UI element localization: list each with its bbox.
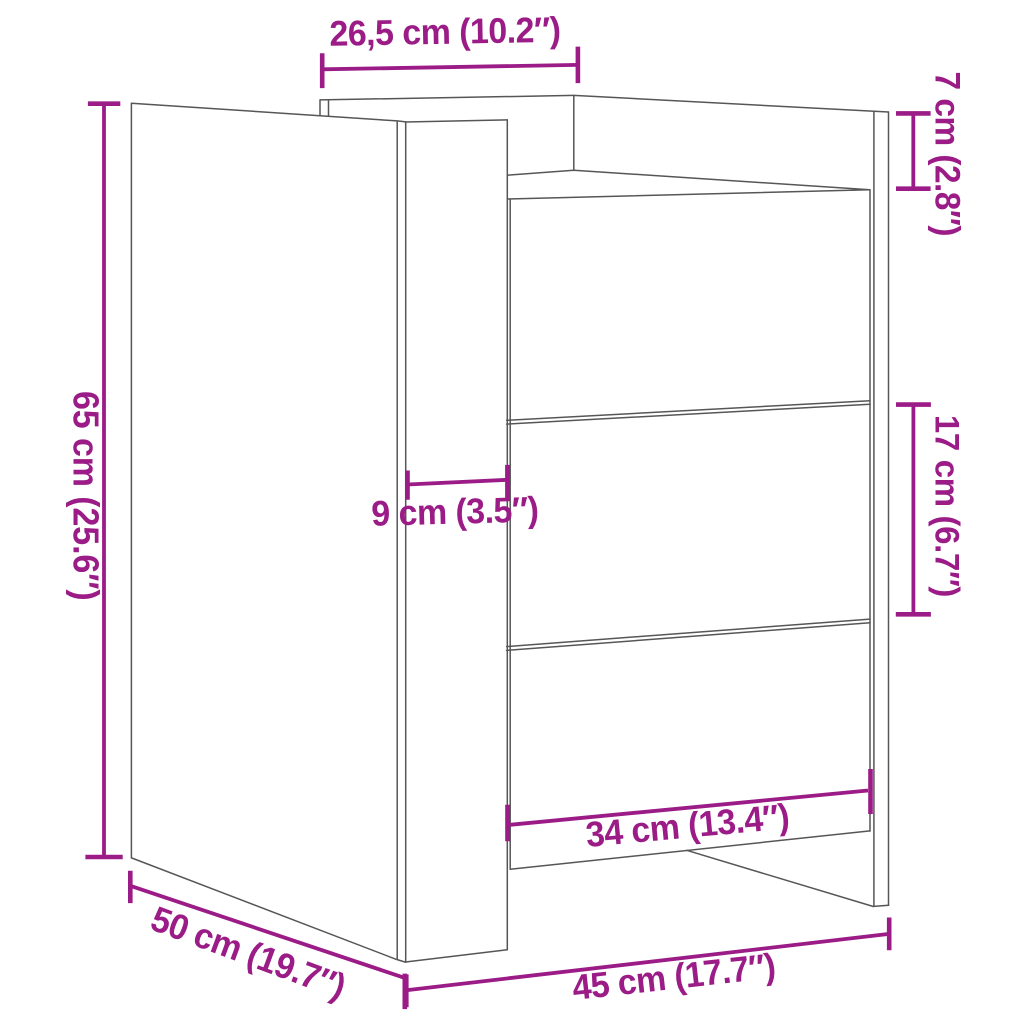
svg-text:65 cm (25.6″): 65 cm (25.6″): [65, 391, 105, 601]
svg-text:26,5 cm (10.2″): 26,5 cm (10.2″): [329, 10, 561, 54]
svg-text:17 cm (6.7″): 17 cm (6.7″): [927, 415, 966, 597]
svg-text:7 cm (2.8″): 7 cm (2.8″): [927, 72, 966, 236]
svg-text:9 cm (3.5″): 9 cm (3.5″): [371, 490, 539, 534]
